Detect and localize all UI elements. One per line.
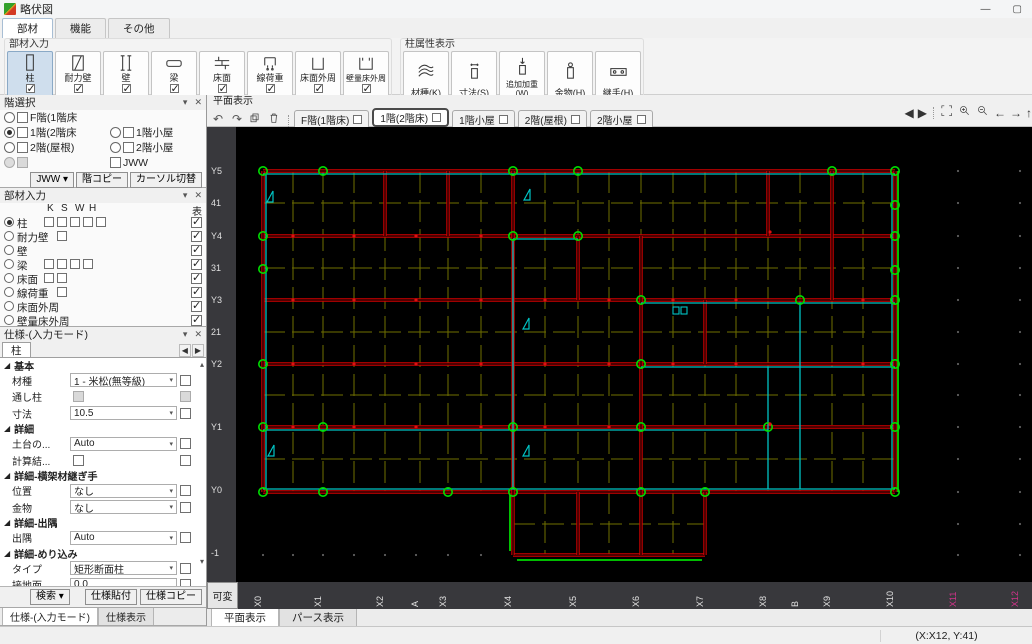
- ribbon-button-checkbox[interactable]: [314, 84, 323, 93]
- floor-label: F階(1階床: [30, 110, 77, 125]
- floor-view-tab-label: 1階(2階床): [380, 110, 428, 125]
- property-label: 寸法: [12, 406, 70, 421]
- delete-icon: [268, 112, 283, 127]
- property-grid: ◢基本材種1 - 米松(無等級)▾通し柱寸法10.5▾◢詳細土台の...Auto…: [0, 358, 206, 587]
- section-expander-icon[interactable]: ◢: [4, 471, 10, 480]
- y-axis-label: Y0: [211, 485, 222, 495]
- y-axis-label: Y1: [211, 422, 222, 432]
- property-value-dropdown[interactable]: Auto▾: [70, 531, 177, 545]
- floor-view-tab-checkbox[interactable]: [637, 115, 646, 124]
- beam-icon: [163, 52, 185, 74]
- drawing-viewport[interactable]: Y541Y431Y321Y2Y1Y0-1: [207, 127, 1032, 582]
- dropdown-arrow-icon: ▾: [169, 440, 173, 448]
- member-type-row: 壁量床外周: [0, 314, 206, 328]
- property-override-checkbox[interactable]: [180, 563, 191, 574]
- spec-footer-button[interactable]: 仕様貼付: [85, 589, 137, 605]
- property-row: 計算結...: [0, 452, 194, 469]
- zoom-in-icon: [958, 104, 972, 118]
- floor-view-tab-label: 2階(屋根): [525, 112, 567, 127]
- member-visible-checkbox[interactable]: [191, 245, 202, 256]
- property-label: 金物: [12, 500, 70, 515]
- floor-select-row: 1階(2階床1階小屋: [0, 125, 206, 140]
- property-override-checkbox[interactable]: [180, 455, 191, 466]
- wall-floor-perimeter-icon: [355, 52, 377, 74]
- x-axis-label: X9: [822, 596, 832, 607]
- ribbon-tab-3[interactable]: その他: [108, 18, 170, 38]
- x-axis-label: A: [410, 601, 420, 607]
- column-letter: H: [89, 203, 96, 214]
- property-value-dropdown[interactable]: Auto▾: [70, 437, 177, 451]
- property-label: 位置: [12, 483, 70, 498]
- member-type-label: 床面外周: [17, 300, 59, 315]
- collapse-icon[interactable]: ▾: [183, 190, 188, 201]
- section-expander-icon[interactable]: ◢: [4, 518, 10, 527]
- floor-label: 1階小屋: [136, 125, 173, 140]
- property-label: 接地面...: [12, 577, 70, 587]
- x-axis-label: X2: [375, 596, 385, 607]
- dropdown-arrow-icon: ▾: [169, 534, 173, 542]
- ribbon-button-beam[interactable]: 梁: [151, 51, 197, 101]
- floor-checkbox[interactable]: [110, 157, 121, 168]
- dropdown-arrow-icon: ▾: [169, 503, 173, 511]
- member-type-label: 床面: [17, 272, 38, 287]
- tab-scroll-right-icon[interactable]: ▶: [192, 344, 204, 357]
- ribbon-tab-bar: 部材機能その他: [0, 18, 1032, 38]
- ribbon-button-size[interactable]: 寸法(S): [451, 51, 497, 101]
- property-value-dropdown[interactable]: なし▾: [70, 484, 177, 498]
- property-override-checkbox[interactable]: [180, 408, 191, 419]
- delete-icon[interactable]: [267, 111, 283, 127]
- y-axis-label: Y2: [211, 359, 222, 369]
- section-title: 基本: [14, 358, 34, 373]
- joint-icon: [607, 60, 629, 82]
- property-value-dropdown[interactable]: なし▾: [70, 500, 177, 514]
- property-row: 位置なし▾: [0, 483, 194, 500]
- ribbon-button-floor-perimeter[interactable]: 床面外周: [295, 51, 341, 101]
- member-type-row: 梁: [0, 258, 206, 272]
- floor-view-tab[interactable]: 1階(2階床): [372, 108, 449, 127]
- property-override-checkbox[interactable]: [180, 579, 191, 587]
- property-value-input[interactable]: 0.0: [70, 578, 177, 587]
- property-checkbox[interactable]: [73, 455, 84, 466]
- maximize-button[interactable]: ▢: [1013, 4, 1022, 15]
- bearing-wall-icon: [67, 52, 89, 74]
- property-override-checkbox[interactable]: [180, 375, 191, 386]
- tab-scroll-left-icon[interactable]: ◀: [179, 344, 191, 357]
- property-override-checkbox[interactable]: [180, 502, 191, 513]
- member-type-label: 壁: [17, 244, 28, 259]
- property-row: 通し柱: [0, 389, 194, 406]
- added-load-icon: [511, 55, 533, 77]
- floor-view-tab-label: 2階小屋: [597, 112, 633, 127]
- ribbon-button-wall-floor-perimeter[interactable]: 壁量床外周: [343, 51, 389, 101]
- x-axis-label: X6: [631, 596, 641, 607]
- member-option-checkbox[interactable]: [44, 217, 54, 227]
- floor-panel-button[interactable]: 階コピー: [76, 172, 128, 188]
- ribbon-button-floor[interactable]: 床面: [199, 51, 245, 101]
- member-type-radio[interactable]: [4, 287, 14, 297]
- floor-view-tab[interactable]: 2階小屋: [590, 110, 653, 127]
- ribbon-button-checkbox[interactable]: [362, 84, 371, 93]
- floor-select-row: F階(1階床: [0, 110, 206, 125]
- title-bar: 略伏図 — ▢: [0, 0, 1032, 18]
- property-checkbox: [73, 391, 84, 402]
- pan-right-icon[interactable]: →: [1010, 106, 1022, 120]
- member-visible-checkbox[interactable]: [191, 287, 202, 298]
- floor-view-tab-label: 1階小屋: [459, 112, 495, 127]
- property-override-checkbox[interactable]: [180, 532, 191, 543]
- spec-bottom-tab[interactable]: 仕様表示: [98, 608, 154, 626]
- property-section-header[interactable]: ◢基本: [0, 358, 194, 372]
- floor-radio[interactable]: [110, 127, 121, 138]
- wall-icon: [115, 52, 137, 74]
- floor-view-tab-checkbox[interactable]: [499, 115, 508, 124]
- property-row: 金物なし▾: [0, 499, 194, 516]
- member-option-checkbox[interactable]: [70, 259, 80, 269]
- close-icon[interactable]: ✕: [194, 190, 202, 201]
- member-option-checkbox[interactable]: [83, 259, 93, 269]
- ribbon-button-checkbox[interactable]: [26, 84, 35, 93]
- search-button[interactable]: 検索 ▾: [30, 589, 70, 605]
- floor-checkbox: [17, 157, 28, 168]
- property-row: 出隅Auto▾: [0, 530, 194, 547]
- scroll-up-icon[interactable]: ▴: [200, 360, 204, 369]
- member-type-label: 梁: [17, 258, 28, 273]
- floor-radio: [4, 157, 15, 168]
- floor-select-row: JWW: [0, 155, 206, 170]
- property-override-checkbox: [180, 391, 191, 402]
- x-axis-label: X3: [438, 596, 448, 607]
- floor-label: JWW: [123, 157, 148, 169]
- floor-checkbox[interactable]: [17, 127, 28, 138]
- property-label: 計算結...: [12, 453, 70, 468]
- floor-view-tab-checkbox[interactable]: [432, 113, 441, 122]
- zoom-in-icon[interactable]: [958, 104, 972, 121]
- spec-footer-button[interactable]: 仕様コピー: [140, 589, 202, 605]
- member-option-checkbox[interactable]: [57, 287, 67, 297]
- minimize-button[interactable]: —: [981, 4, 991, 15]
- member-type-radio[interactable]: [4, 231, 14, 241]
- view-tab-bar: 平面表示パース表示: [207, 609, 1032, 626]
- pan-up-icon[interactable]: ↑: [1026, 106, 1032, 120]
- floor-select-row: 2階(屋根)2階小屋: [0, 140, 206, 155]
- floor-select-panel: 階選択▾✕F階(1階床1階(2階床1階小屋2階(屋根)2階小屋JWWJWW ▾階…: [0, 95, 206, 188]
- floor-label: 1階(2階床: [30, 125, 77, 140]
- window-title: 略伏図: [20, 1, 53, 17]
- member-option-checkbox[interactable]: [57, 259, 67, 269]
- undo-icon[interactable]: ↶: [210, 111, 226, 127]
- x-axis-label: B: [790, 601, 800, 607]
- copy-icon[interactable]: [248, 111, 264, 127]
- ribbon-button-checkbox[interactable]: [170, 84, 179, 93]
- collapse-icon[interactable]: ▾: [183, 329, 188, 340]
- floor-radio[interactable]: [110, 142, 121, 153]
- section-title: 詳細: [14, 421, 34, 436]
- member-option-checkbox[interactable]: [70, 217, 80, 227]
- zoom-fit-icon: [940, 104, 954, 118]
- spec-panel: 仕様-(入力モード)▾✕柱◀▶◢基本材種1 - 米松(無等級)▾通し柱寸法10.…: [0, 327, 206, 626]
- ribbon-button-post[interactable]: 柱: [7, 51, 53, 101]
- column-letter: K: [47, 203, 54, 214]
- x-axis-label: X12: [1010, 591, 1020, 607]
- collapse-icon[interactable]: ▾: [183, 97, 188, 108]
- floor-checkbox[interactable]: [123, 127, 134, 138]
- section-title: 詳細-横架材継ぎ手: [14, 468, 97, 483]
- member-column-headers: KSWH表: [0, 203, 206, 216]
- hardware-icon: [559, 60, 581, 82]
- member-option-checkbox[interactable]: [44, 259, 54, 269]
- section-title: 詳細-めり込み: [14, 546, 77, 561]
- member-panel-header: 部材入力▾✕: [0, 188, 206, 203]
- y-axis-label: Y5: [211, 166, 222, 176]
- x-axis-label: X5: [568, 596, 578, 607]
- x-axis-label: X10: [885, 591, 895, 607]
- property-row: タイプ矩形断面柱▾: [0, 560, 194, 577]
- member-type-label: 柱: [17, 216, 28, 231]
- member-type-radio[interactable]: [4, 273, 14, 283]
- close-icon[interactable]: ✕: [194, 329, 202, 340]
- property-value-dropdown[interactable]: 1 - 米松(無等級)▾: [70, 373, 177, 387]
- ribbon-tab-1[interactable]: 部材: [2, 18, 53, 38]
- floor-view-tab-label: F階(1階床): [301, 112, 349, 127]
- member-option-checkbox[interactable]: [57, 217, 67, 227]
- x-axis-label: X4: [503, 596, 513, 607]
- redo-icon[interactable]: ↷: [229, 111, 245, 127]
- dropdown-arrow-icon: ▾: [169, 487, 173, 495]
- property-override-checkbox[interactable]: [180, 438, 191, 449]
- spec-panel-header: 仕様-(入力モード)▾✕: [0, 327, 206, 342]
- member-type-row: 柱: [0, 216, 206, 230]
- ribbon-tab-2[interactable]: 機能: [55, 18, 106, 38]
- property-label: 出隅: [12, 530, 70, 545]
- ribbon-button-added-load[interactable]: 追加加重(W): [499, 51, 545, 101]
- floor-view-tab-checkbox[interactable]: [353, 115, 362, 124]
- member-type-row: 床面外周: [0, 300, 206, 314]
- member-input-panel: 部材入力▾✕KSWH表柱耐力壁壁梁床面線荷重床面外周壁量床外周: [0, 188, 206, 327]
- status-bar: (X:X12, Y:41): [0, 626, 1032, 644]
- section-expander-icon[interactable]: ◢: [4, 424, 10, 433]
- ribbon-button-wall[interactable]: 壁: [103, 51, 149, 101]
- member-option-checkbox[interactable]: [96, 217, 106, 227]
- spec-bottom-tab[interactable]: 仕様-(入力モード): [2, 608, 98, 626]
- floor-checkbox[interactable]: [17, 112, 28, 123]
- close-icon[interactable]: ✕: [194, 97, 202, 108]
- app-icon: [4, 3, 16, 15]
- member-input-group-title: 部材入力: [7, 39, 389, 51]
- floor-view-tab[interactable]: F階(1階床): [294, 110, 369, 127]
- dropdown-arrow-icon: ▾: [169, 376, 173, 384]
- member-visible-checkbox[interactable]: [191, 273, 202, 284]
- member-type-radio[interactable]: [4, 301, 14, 311]
- x-axis-label: X0: [253, 596, 263, 607]
- property-row: 材種1 - 米松(無等級)▾: [0, 372, 194, 389]
- column-letter: W: [75, 203, 84, 214]
- section-expander-icon[interactable]: ◢: [4, 361, 10, 370]
- ribbon-button-hardware[interactable]: 金物(H): [547, 51, 593, 101]
- y-axis-label: 41: [211, 198, 221, 208]
- ribbon-button-material[interactable]: 材種(K): [403, 51, 449, 101]
- member-type-label: 線荷重: [17, 286, 49, 301]
- size-icon: [463, 60, 485, 82]
- member-visible-checkbox[interactable]: [191, 259, 202, 270]
- member-input-group: 部材入力 柱耐力壁壁梁床面線荷重床面外周壁量床外周: [4, 38, 392, 103]
- spec-bottom-tabs: 仕様-(入力モード)仕様表示: [0, 608, 206, 625]
- x-axis-label: X8: [758, 596, 768, 607]
- floor-view-tab[interactable]: 2階(屋根): [518, 110, 587, 127]
- floor-view-tab[interactable]: 1階小屋: [452, 110, 515, 127]
- floor-panel-title: 階選択: [4, 95, 36, 110]
- material-icon: [415, 60, 437, 82]
- ribbon-button-joint[interactable]: 継手(H): [595, 51, 641, 101]
- property-value-dropdown[interactable]: 10.5▾: [70, 406, 177, 420]
- floor-label: 2階(屋根): [30, 140, 74, 155]
- canvas-area: 平面表示 ↶↷F階(1階床)1階(2階床)1階小屋2階(屋根)2階小屋 ◀▶←→…: [207, 95, 1032, 626]
- member-option-checkbox[interactable]: [44, 273, 54, 283]
- section-title: 詳細-出隅: [14, 515, 57, 530]
- view-tab[interactable]: パース表示: [279, 609, 357, 627]
- scroll-down-icon[interactable]: ▾: [200, 557, 204, 566]
- property-label: 土台の...: [12, 436, 70, 451]
- floor-radio[interactable]: [4, 142, 15, 153]
- x-axis-strip: X0X1X2AX3X4X5X6X7X8BX9X10X11X12: [238, 582, 1032, 609]
- member-type-radio[interactable]: [4, 259, 14, 269]
- member-type-radio[interactable]: [4, 217, 14, 227]
- ribbon-button-bearing-wall[interactable]: 耐力壁: [55, 51, 101, 101]
- post-attribute-group: 柱属性表示 材種(K)寸法(S)追加加重(W)金物(H)継手(H): [400, 38, 644, 103]
- floor-panel-button[interactable]: カーソル切替: [130, 172, 202, 188]
- member-type-row: 壁: [0, 244, 206, 258]
- property-label: タイプ: [12, 561, 70, 576]
- x-axis-label: X11: [948, 592, 958, 607]
- y-axis-strip: Y541Y431Y321Y2Y1Y0-1: [207, 127, 236, 582]
- y-axis-label: 31: [211, 263, 221, 273]
- zoom-out-icon: [976, 104, 990, 118]
- ribbon: 部材入力 柱耐力壁壁梁床面線荷重床面外周壁量床外周 柱属性表示 材種(K)寸法(…: [0, 38, 1032, 95]
- property-section-header[interactable]: ◢詳細-横架材継ぎ手: [0, 469, 194, 483]
- floor-panel-button[interactable]: JWW ▾: [30, 172, 74, 188]
- post-icon: [19, 52, 41, 74]
- member-visible-checkbox[interactable]: [191, 315, 202, 326]
- floor-icon: [211, 52, 233, 74]
- member-type-row: 線荷重: [0, 286, 206, 300]
- member-type-label: 耐力壁: [17, 230, 49, 245]
- view-tab[interactable]: 平面表示: [211, 609, 279, 627]
- member-visible-checkbox[interactable]: [191, 217, 202, 228]
- member-option-checkbox[interactable]: [83, 217, 93, 227]
- floor-plan-drawing[interactable]: [236, 127, 1032, 582]
- property-row: 接地面...0.0: [0, 577, 194, 588]
- ribbon-button-checkbox[interactable]: [74, 84, 83, 93]
- member-type-row: 床面: [0, 272, 206, 286]
- section-expander-icon[interactable]: ◢: [4, 549, 10, 558]
- property-section-header[interactable]: ◢詳細-出隅: [0, 516, 194, 530]
- property-section-header[interactable]: ◢詳細-めり込み: [0, 546, 194, 560]
- spec-tab-post[interactable]: 柱: [2, 342, 31, 357]
- property-label: 通し柱: [12, 389, 70, 404]
- property-override-checkbox[interactable]: [180, 485, 191, 496]
- y-axis-label: Y3: [211, 295, 222, 305]
- ribbon-button-checkbox[interactable]: [218, 84, 227, 93]
- member-visible-checkbox[interactable]: [191, 231, 202, 242]
- ribbon-button-checkbox[interactable]: [266, 84, 275, 93]
- member-type-radio[interactable]: [4, 315, 14, 325]
- floor-radio[interactable]: [4, 127, 15, 138]
- floor-checkbox[interactable]: [123, 142, 134, 153]
- floor-radio[interactable]: [4, 112, 15, 123]
- dropdown-arrow-icon: ▾: [169, 409, 173, 417]
- floor-view-tab-checkbox[interactable]: [571, 115, 580, 124]
- member-option-checkbox[interactable]: [57, 231, 67, 241]
- x-axis-label: X1: [313, 596, 323, 607]
- member-type-row: 耐力壁: [0, 230, 206, 244]
- property-row: 寸法10.5▾: [0, 405, 194, 422]
- member-panel-title: 部材入力: [4, 188, 46, 203]
- copy-icon: [249, 112, 264, 127]
- dropdown-arrow-icon: ▾: [169, 564, 173, 572]
- left-sidebar: 階選択▾✕F階(1階床1階(2階床1階小屋2階(屋根)2階小屋JWWJWW ▾階…: [0, 95, 207, 626]
- post-attribute-group-title: 柱属性表示: [403, 39, 641, 51]
- property-row: 土台の...Auto▾: [0, 436, 194, 453]
- ribbon-button-checkbox[interactable]: [122, 84, 131, 93]
- property-value-dropdown[interactable]: 矩形断面柱▾: [70, 561, 177, 575]
- floor-checkbox[interactable]: [17, 142, 28, 153]
- y-axis-label: 21: [211, 327, 221, 337]
- property-section-header[interactable]: ◢詳細: [0, 422, 194, 436]
- zoom-out-icon[interactable]: [976, 104, 990, 121]
- property-label: 材種: [12, 373, 70, 388]
- column-letter: S: [61, 203, 68, 214]
- variable-button[interactable]: 可変: [207, 582, 238, 609]
- y-axis-label: Y4: [211, 231, 222, 241]
- floor-panel-header: 階選択▾✕: [0, 95, 206, 110]
- zoom-fit-icon[interactable]: [940, 104, 954, 121]
- line-load-icon: [259, 52, 281, 74]
- pan-left-icon[interactable]: ←: [994, 106, 1006, 120]
- x-axis-label: X7: [695, 596, 705, 607]
- pane-right-icon[interactable]: ▶: [918, 106, 927, 120]
- pane-left-icon[interactable]: ◀: [905, 106, 914, 120]
- app-window: 略伏図 — ▢ 部材機能その他 部材入力 柱耐力壁壁梁床面線荷重床面外周壁量床外…: [0, 0, 1032, 644]
- floor-perimeter-icon: [307, 52, 329, 74]
- spec-panel-title: 仕様-(入力モード): [4, 327, 88, 342]
- ribbon-button-line-load[interactable]: 線荷重: [247, 51, 293, 101]
- cursor-coordinates: (X:X12, Y:41): [880, 630, 1012, 642]
- y-axis-label: -1: [211, 548, 219, 558]
- member-type-radio[interactable]: [4, 245, 14, 255]
- member-option-checkbox[interactable]: [57, 273, 67, 283]
- floor-label: 2階小屋: [136, 140, 173, 155]
- member-visible-checkbox[interactable]: [191, 301, 202, 312]
